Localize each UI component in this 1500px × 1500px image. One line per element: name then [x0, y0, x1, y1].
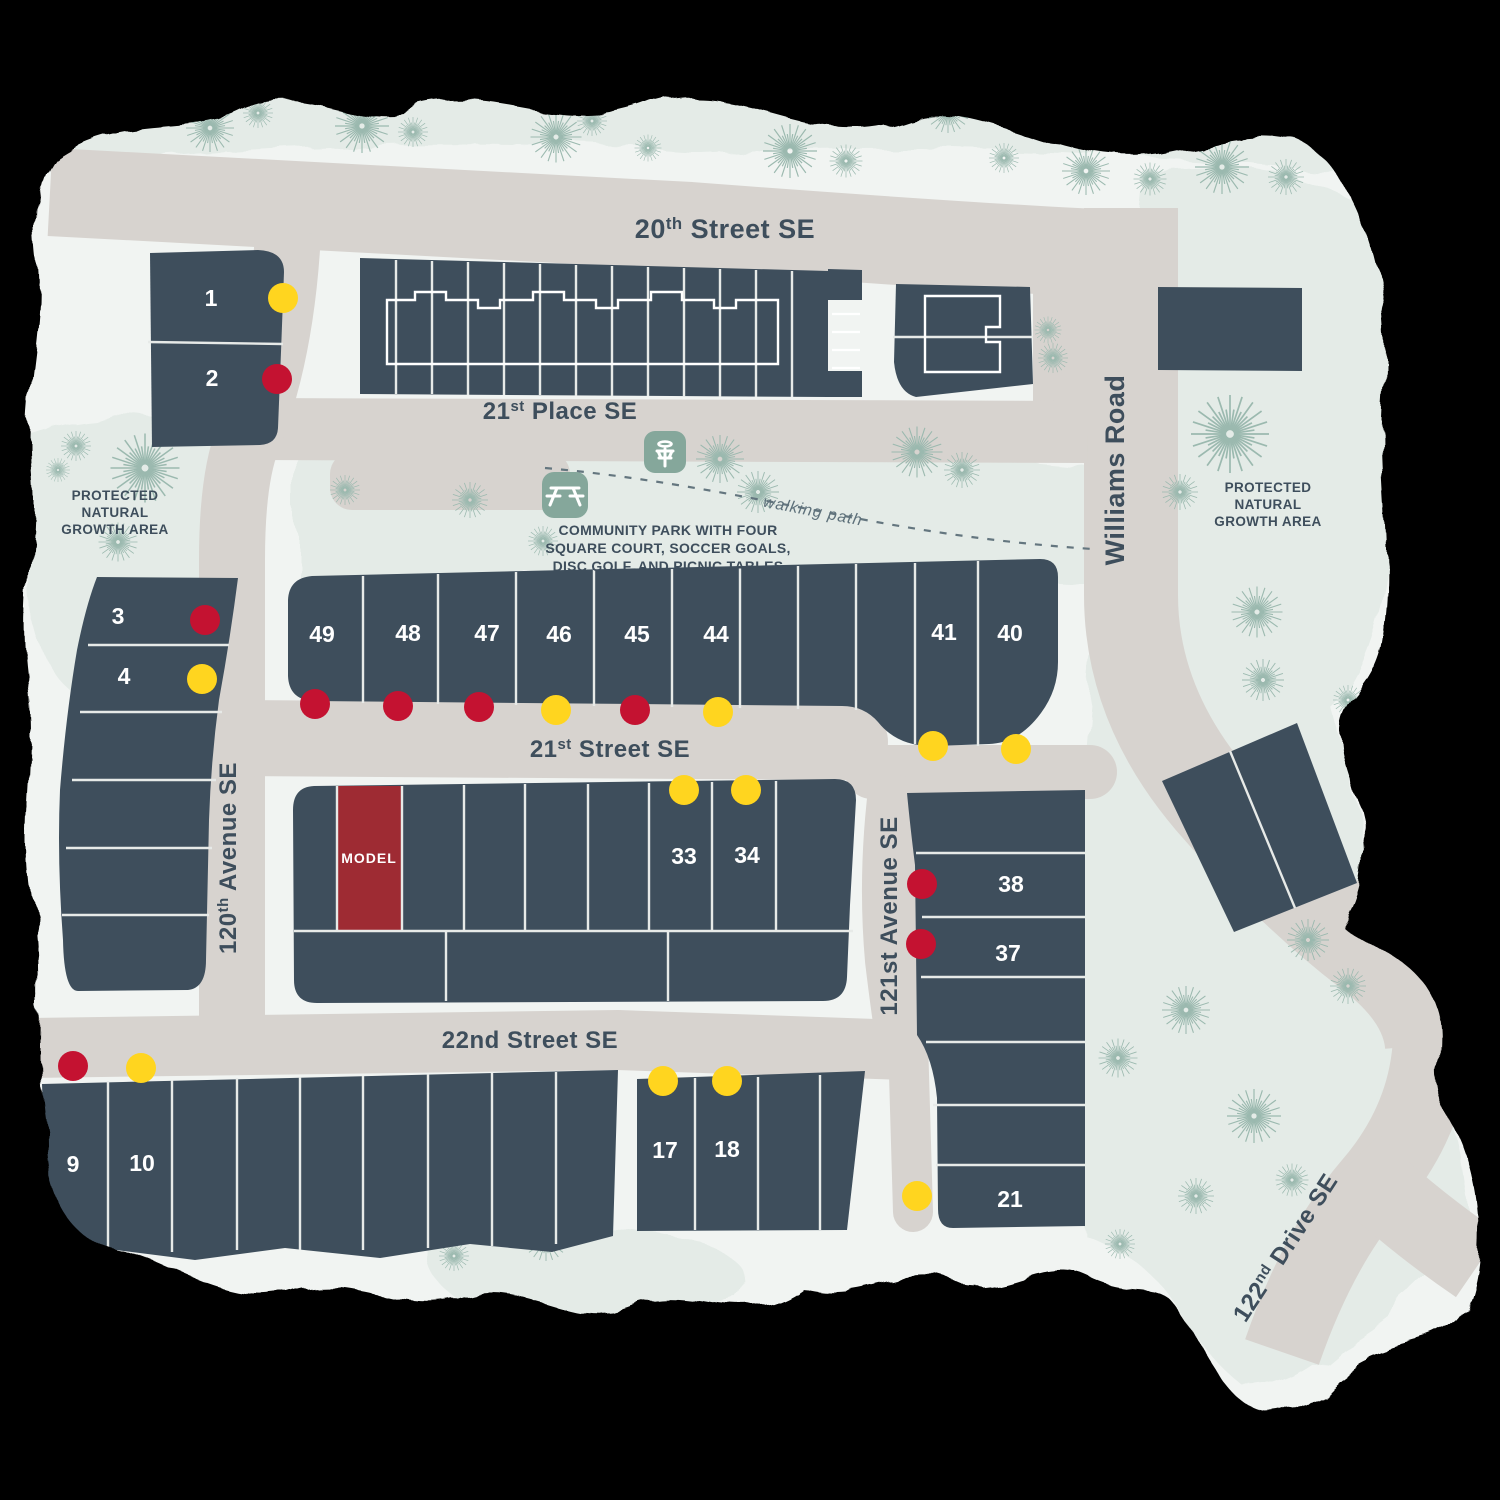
lot-number-38[interactable]: 38: [998, 871, 1024, 897]
lot-number-18[interactable]: 18: [714, 1136, 740, 1162]
lot-46-marker-yellow[interactable]: [541, 695, 571, 725]
lot-21-marker-yellow[interactable]: [902, 1181, 932, 1211]
lot-block-1-2: [150, 250, 284, 447]
street-label-22nd-street-se: 22nd Street SE: [442, 1027, 618, 1054]
site-map-page: 1234910171821333437384041444546474849 20…: [0, 0, 1500, 1500]
street-label-20th-street-se: 20th Street SE: [635, 214, 815, 244]
lot-49-marker-red[interactable]: [300, 689, 330, 719]
lot-number-47[interactable]: 47: [474, 620, 500, 646]
community-site-map: 1234910171821333437384041444546474849 20…: [0, 0, 1500, 1500]
lot-number-49[interactable]: 49: [309, 621, 335, 647]
road-park-stub: [330, 452, 570, 510]
lot-17-marker-yellow[interactable]: [648, 1066, 678, 1096]
lot-44-marker-yellow[interactable]: [703, 697, 733, 727]
lot-number-45[interactable]: 45: [624, 621, 650, 647]
lot-number-10[interactable]: 10: [129, 1150, 155, 1176]
street-label-21st-place-se: 21st Place SE: [483, 398, 638, 425]
model-home-label: MODEL: [341, 850, 397, 866]
lot-number-46[interactable]: 46: [546, 621, 572, 647]
lot-number-2[interactable]: 2: [206, 365, 219, 391]
picnic-table-icon: [542, 472, 588, 518]
lot-number-37[interactable]: 37: [995, 940, 1021, 966]
lot-33-marker-yellow[interactable]: [669, 775, 699, 805]
lot-18-marker-yellow[interactable]: [712, 1066, 742, 1096]
street-label-121st-avenue-se: 121st Avenue SE: [876, 816, 903, 1015]
lot-2-marker-red[interactable]: [262, 364, 292, 394]
lot-number-21[interactable]: 21: [997, 1186, 1023, 1212]
lot-number-33[interactable]: 33: [671, 843, 697, 869]
disc-golf-icon: [644, 431, 686, 473]
lot-4-marker-yellow[interactable]: [187, 664, 217, 694]
lot-block-townhomes-arm-bottom: [828, 371, 862, 397]
lot-number-17[interactable]: 17: [652, 1137, 678, 1163]
lot-10-marker-yellow[interactable]: [126, 1053, 156, 1083]
street-label-williams-road: Williams Road: [1100, 375, 1130, 566]
lot-41-marker-yellow[interactable]: [918, 731, 948, 761]
lot-9-marker-red[interactable]: [58, 1051, 88, 1081]
lot-number-9[interactable]: 9: [67, 1151, 80, 1177]
lot-3-marker-red[interactable]: [190, 605, 220, 635]
lot-number-41[interactable]: 41: [931, 619, 957, 645]
lot-40-marker-yellow[interactable]: [1001, 734, 1031, 764]
lot-block-northeast: [1158, 287, 1302, 371]
lot-37-marker-red[interactable]: [906, 929, 936, 959]
lot-number-3[interactable]: 3: [112, 603, 125, 629]
lot-number-40[interactable]: 40: [997, 620, 1023, 646]
lot-number-48[interactable]: 48: [395, 620, 421, 646]
lot-number-1[interactable]: 1: [205, 285, 218, 311]
lot-45-marker-red[interactable]: [620, 695, 650, 725]
lot-47-marker-red[interactable]: [464, 692, 494, 722]
lot-number-4[interactable]: 4: [118, 663, 131, 689]
lot-38-marker-red[interactable]: [907, 869, 937, 899]
lot-1-marker-yellow[interactable]: [268, 283, 298, 313]
lot-number-34[interactable]: 34: [734, 842, 760, 868]
lot-block-townhomes: [360, 258, 828, 397]
street-label-120th-avenue-se: 120th Avenue SE: [215, 762, 242, 954]
community-park-label: COMMUNITY PARK WITH FOURSQUARE COURT, SO…: [545, 522, 790, 574]
lot-number-44[interactable]: 44: [703, 621, 729, 647]
lot-block-townhomes-arm-top: [828, 269, 862, 300]
lot-34-marker-yellow[interactable]: [731, 775, 761, 805]
lot-48-marker-red[interactable]: [383, 691, 413, 721]
lot-block-duplex: [894, 284, 1033, 397]
street-label-21st-street-se: 21st Street SE: [530, 736, 690, 763]
